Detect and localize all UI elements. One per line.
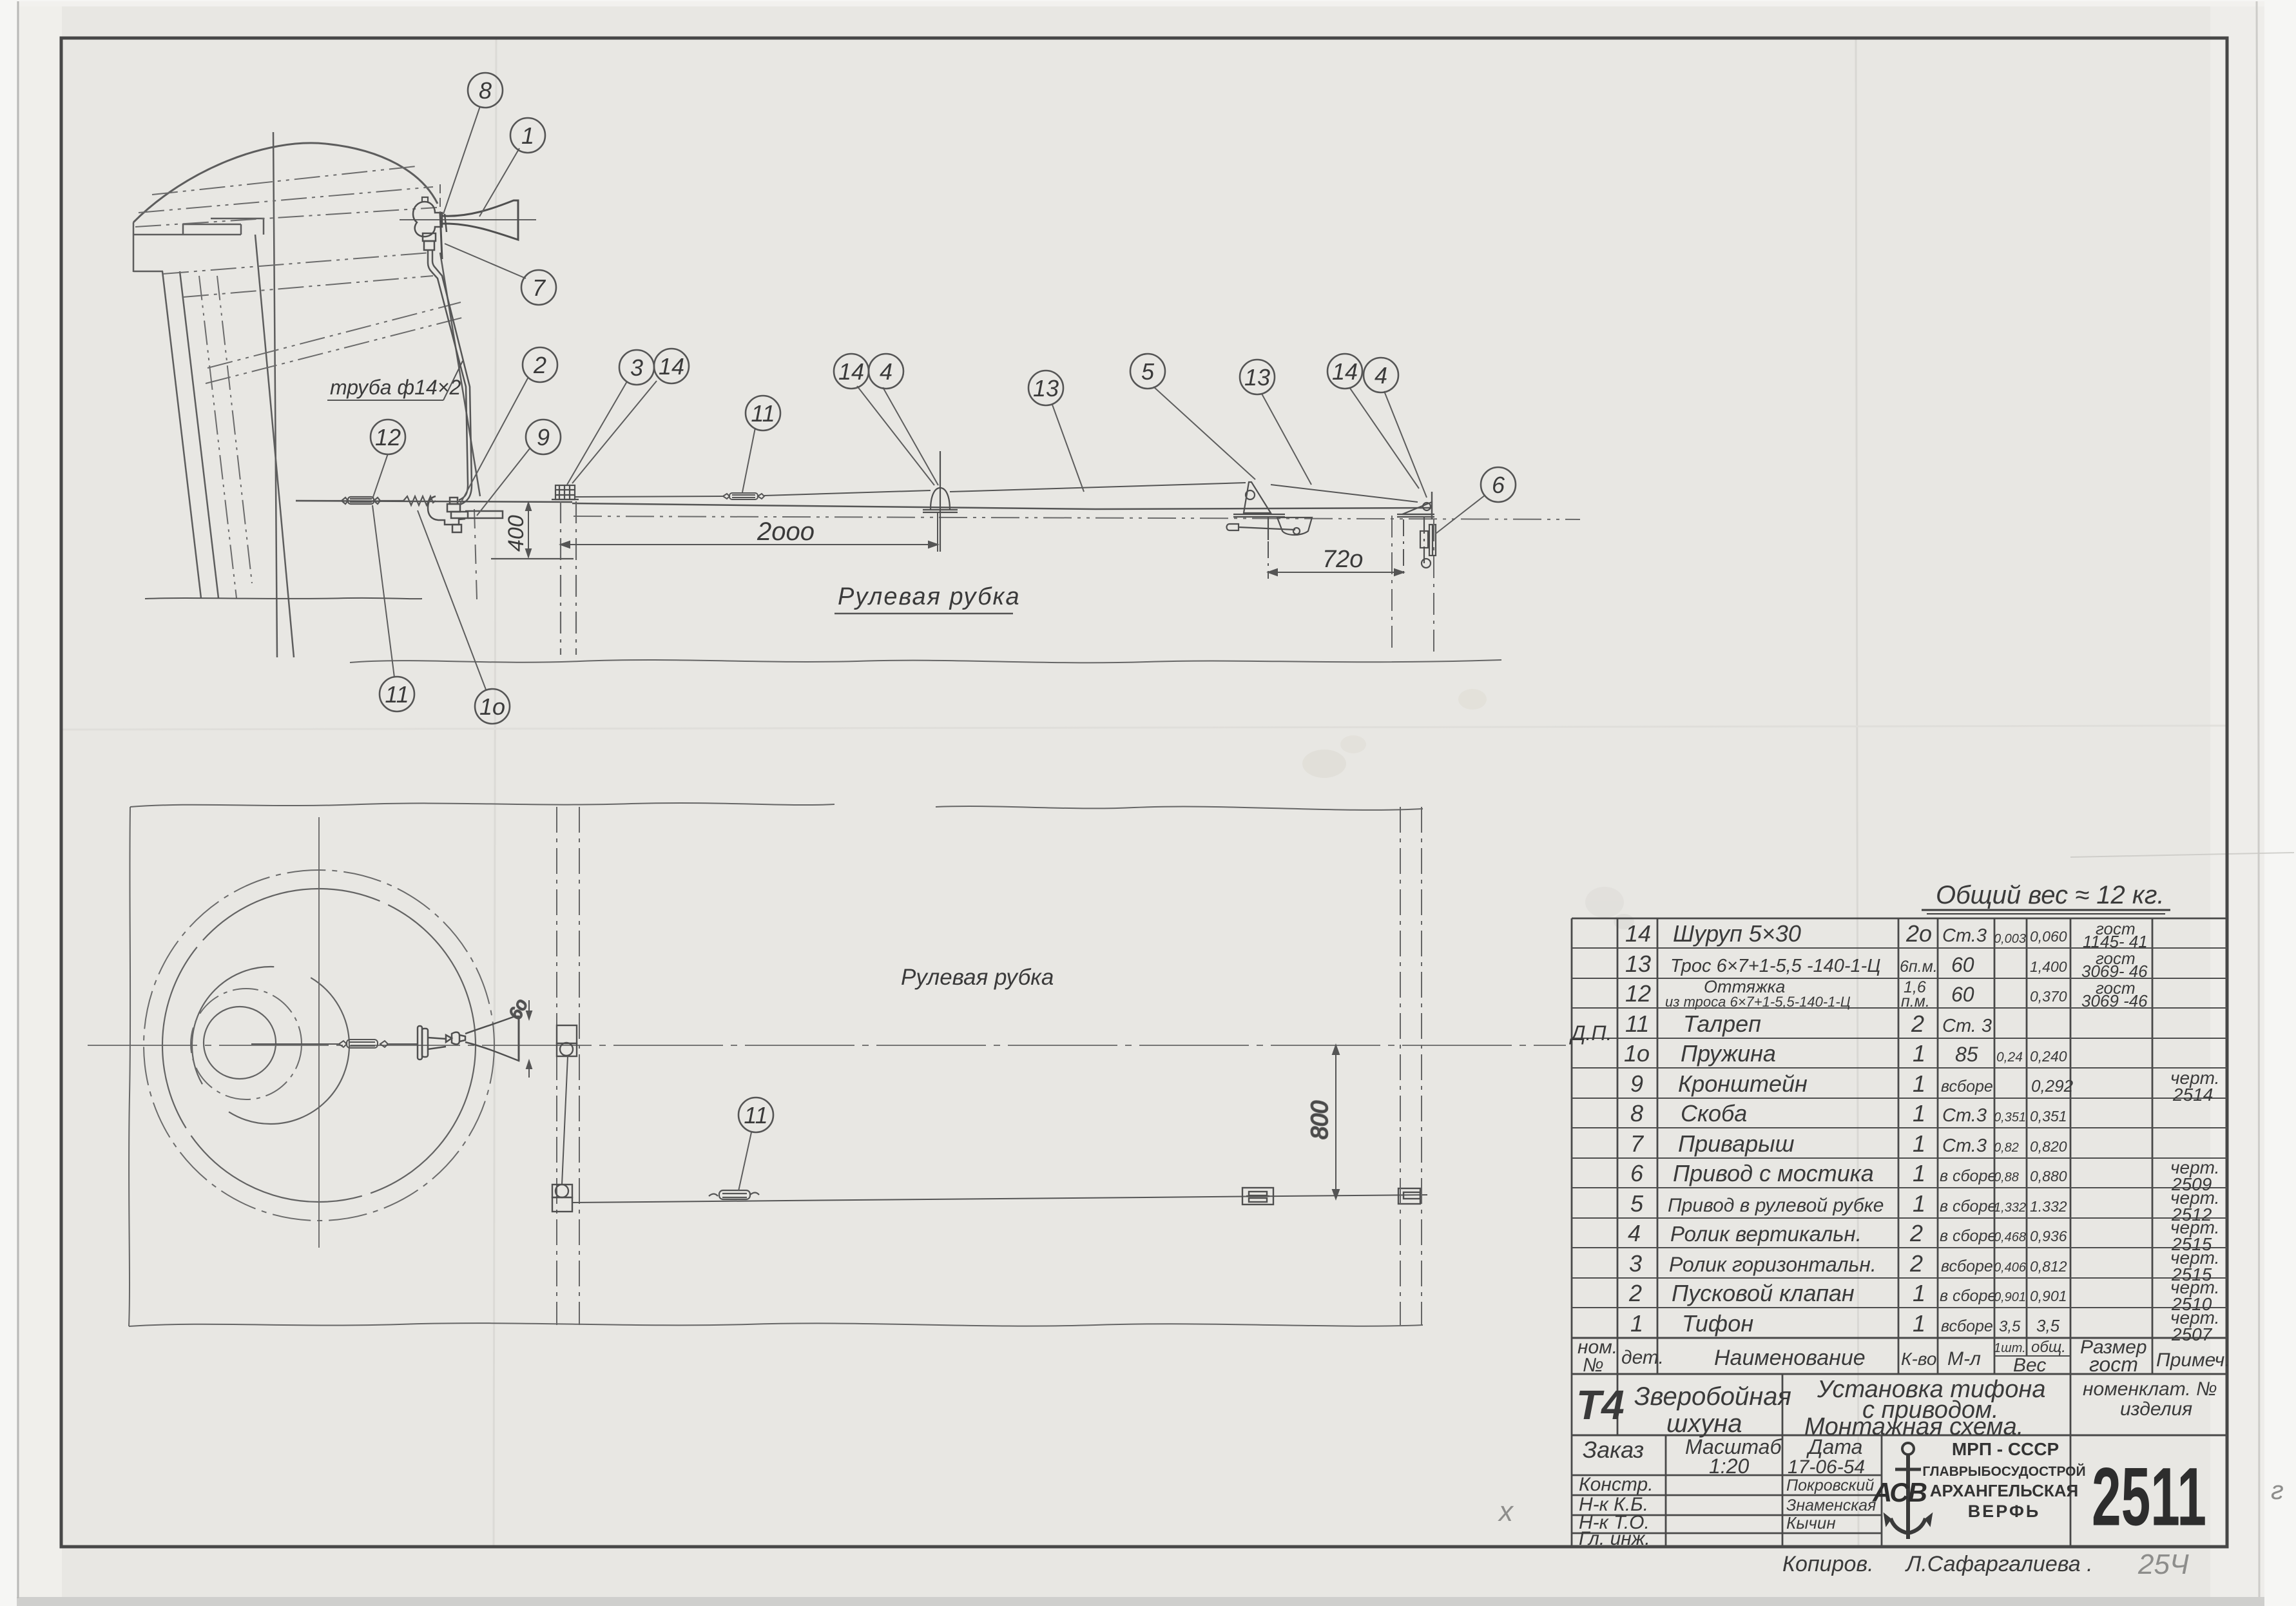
svg-text:2507: 2507 [2171,1324,2213,1344]
svg-text:1,332: 1,332 [1994,1201,2026,1215]
svg-text:3: 3 [630,354,643,381]
svg-text:0,901: 0,901 [1994,1290,2026,1304]
svg-text:14: 14 [1625,920,1651,947]
svg-text:Наименование: Наименование [1714,1346,1866,1370]
svg-text:800: 800 [1306,1101,1333,1139]
svg-text:изделия: изделия [2120,1398,2192,1420]
svg-text:Общий вес ≈ 12 кг.: Общий вес ≈ 12 кг. [1936,881,2165,909]
svg-text:13: 13 [1625,951,1651,977]
svg-text:2: 2 [533,352,546,378]
svg-text:труба ф14×2: труба ф14×2 [330,376,461,399]
svg-text:Заказ: Заказ [1583,1437,1644,1463]
svg-text:72o: 72o [1322,546,1363,573]
svg-text:Тифон: Тифон [1682,1310,1753,1337]
svg-text:13: 13 [1244,364,1270,391]
svg-text:2514: 2514 [2172,1085,2213,1105]
svg-text:9: 9 [537,424,550,450]
svg-text:11: 11 [751,400,775,427]
svg-text:Пусковой клапан: Пусковой клапан [1672,1280,1855,1306]
svg-text:Д.П.: Д.П. [1569,1021,1612,1045]
svg-text:в сборе: в сборе [1940,1227,1996,1245]
svg-text:АРХАНГЕЛЬСКАЯ: АРХАНГЕЛЬСКАЯ [1930,1481,2079,1500]
svg-text:1: 1 [1913,1040,1925,1067]
svg-text:1o: 1o [479,693,505,720]
svg-text:2: 2 [1909,1250,1923,1277]
svg-text:г: г [2271,1476,2284,1505]
svg-text:1: 1 [1913,1070,1925,1097]
svg-text:12: 12 [375,424,401,450]
svg-text:Ролик вертикальн.: Ролик вертикальн. [1670,1222,1862,1246]
svg-text:5: 5 [1141,358,1155,385]
svg-text:0,820: 0,820 [2030,1138,2067,1155]
svg-text:0,468: 0,468 [1994,1230,2026,1244]
svg-text:60: 60 [1951,983,1974,1006]
svg-text:2: 2 [1909,1220,1923,1246]
svg-text:МРП - СССР: МРП - СССР [1952,1439,2059,1459]
svg-text:4: 4 [1628,1220,1641,1246]
svg-text:11: 11 [385,681,409,708]
svg-text:Талреп: Талреп [1683,1011,1761,1037]
svg-text:в сборе: в сборе [1940,1287,1996,1305]
svg-text:Шуруп 5×30: Шуруп 5×30 [1673,920,1801,947]
svg-text:0,060: 0,060 [2030,928,2067,945]
svg-text:М-л: М-л [1947,1348,1981,1369]
svg-text:2o: 2o [1905,920,1932,947]
svg-text:0,292: 0,292 [2031,1076,2074,1096]
svg-text:Ст.3: Ст.3 [1942,925,1987,946]
svg-text:0,936: 0,936 [2030,1228,2067,1244]
svg-text:К-во: К-во [1901,1349,1936,1369]
svg-text:0,240: 0,240 [2030,1048,2067,1065]
svg-text:0,351: 0,351 [2030,1108,2067,1125]
svg-text:3,5: 3,5 [2036,1316,2060,1335]
svg-text:дет.: дет. [1621,1347,1664,1368]
svg-text:Ст. 3: Ст. 3 [1942,1016,1992,1036]
svg-text:2: 2 [1628,1280,1642,1306]
svg-text:4: 4 [1375,362,1387,389]
svg-text:0,406: 0,406 [1994,1261,2027,1275]
svg-text:шхуна: шхуна [1666,1409,1742,1438]
svg-text:0,880: 0,880 [2030,1168,2067,1185]
svg-text:13: 13 [1033,375,1059,401]
svg-text:Примеч.: Примеч. [2156,1350,2230,1371]
svg-text:1: 1 [1913,1190,1925,1217]
svg-text:400: 400 [504,515,528,552]
svg-text:всборе: всборе [1941,1078,1993,1096]
svg-text:11: 11 [744,1102,767,1128]
svg-text:1: 1 [1913,1100,1925,1127]
svg-text:п.м.: п.м. [1901,992,1930,1011]
svg-text:0,351: 0,351 [1994,1110,2026,1125]
svg-text:2511: 2511 [2092,1451,2206,1543]
svg-text:12: 12 [1625,980,1651,1007]
svg-text:14: 14 [1332,358,1358,385]
svg-text:9: 9 [1630,1070,1643,1097]
svg-text:Рулевая рубка: Рулевая рубка [901,965,1054,990]
svg-text:14: 14 [838,358,864,385]
svg-text:всборе: всборе [1941,1257,1993,1275]
svg-text:1:20: 1:20 [1709,1455,1749,1478]
svg-text:85: 85 [1955,1043,1978,1066]
svg-text:1: 1 [1913,1130,1925,1157]
svg-text:Дата: Дата [1806,1435,1862,1458]
svg-text:0,82: 0,82 [1994,1141,2019,1155]
svg-text:1: 1 [1913,1280,1925,1306]
svg-text:2: 2 [1911,1011,1924,1037]
svg-text:№: № [1583,1355,1604,1376]
svg-text:Рулевая рубка: Рулевая рубка [838,583,1021,610]
svg-text:Констр.: Констр. [1579,1474,1654,1495]
svg-text:0,88: 0,88 [1994,1170,2019,1185]
svg-text:ВЕРФЬ: ВЕРФЬ [1968,1502,2041,1521]
svg-text:1: 1 [1630,1310,1643,1337]
svg-text:6: 6 [1630,1160,1644,1186]
svg-text:Копиров.: Копиров. [1782,1552,1874,1576]
svg-text:АСВ: АСВ [1872,1477,1927,1507]
svg-text:6: 6 [1492,472,1505,498]
svg-text:Ст.3: Ст.3 [1942,1136,1987,1156]
svg-text:1,400: 1,400 [2030,958,2067,975]
svg-text:11: 11 [1625,1011,1649,1037]
svg-text:0,370: 0,370 [2030,988,2067,1005]
svg-text:60: 60 [1951,953,1974,976]
svg-text:из троса 6×7+1-5,5-140-1-Ц: из троса 6×7+1-5,5-140-1-Ц [1665,994,1851,1010]
svg-text:3069 -46: 3069 -46 [2081,991,2148,1011]
svg-text:Покровский: Покровский [1786,1476,1874,1495]
svg-text:4: 4 [880,358,892,385]
svg-text:6п.м.: 6п.м. [1900,958,1938,976]
svg-text:гост: гост [2089,1353,2138,1376]
svg-text:1.332: 1.332 [2030,1198,2067,1215]
svg-text:Скоба: Скоба [1681,1100,1747,1127]
svg-text:Зверобойная: Зверобойная [1634,1382,1791,1411]
svg-text:х: х [1498,1496,1514,1527]
svg-text:Знаменская: Знаменская [1786,1496,1876,1514]
svg-text:Пружина: Пружина [1681,1040,1776,1067]
svg-text:Кронштейн: Кронштейн [1678,1070,1808,1097]
svg-text:0,003: 0,003 [1994,932,2026,946]
svg-text:общ.: общ. [2031,1339,2066,1356]
svg-text:0,24: 0,24 [1996,1050,2023,1065]
svg-text:Ролик горизонтальн.: Ролик горизонтальн. [1669,1253,1876,1276]
svg-text:1: 1 [521,122,534,149]
svg-text:Трос 6×7+1-5,5 -140-1-Ц: Трос 6×7+1-5,5 -140-1-Ц [1670,956,1880,976]
svg-text:Кычин: Кычин [1786,1513,1836,1533]
svg-text:Приварыш: Приварыш [1678,1130,1795,1157]
svg-text:3: 3 [1629,1250,1642,1277]
svg-text:Привод в рулевой рубке: Привод в рулевой рубке [1668,1195,1884,1216]
svg-text:0,901: 0,901 [2030,1288,2067,1304]
svg-text:0,812: 0,812 [2030,1258,2067,1275]
svg-text:8: 8 [1630,1100,1643,1127]
svg-text:1: 1 [1913,1160,1925,1186]
svg-text:25Ч: 25Ч [2137,1549,2189,1580]
svg-text:Гл. инж.: Гл. инж. [1579,1528,1650,1549]
svg-text:Привод с мостика: Привод с мостика [1673,1160,1874,1186]
svg-text:1o: 1o [1624,1040,1650,1067]
svg-text:Ст.3: Ст.3 [1942,1105,1987,1126]
svg-text:17-06-54: 17-06-54 [1788,1456,1865,1478]
svg-text:5: 5 [1630,1190,1644,1217]
svg-text:в сборе: в сборе [1940,1167,1996,1185]
svg-text:Вес: Вес [2013,1355,2046,1376]
svg-text:ГЛАВРЫБОСУДОСТРОЙ: ГЛАВРЫБОСУДОСТРОЙ [1922,1464,2085,1479]
svg-text:1: 1 [1913,1310,1925,1337]
svg-text:в сборе: в сборе [1940,1197,1996,1215]
svg-text:Л.Сафаргалиева .: Л.Сафаргалиева . [1905,1552,2093,1576]
svg-text:7: 7 [1630,1130,1645,1157]
svg-text:2ooo: 2ooo [757,518,815,546]
svg-text:всборе: всборе [1941,1317,1993,1335]
svg-text:Т4: Т4 [1576,1382,1625,1428]
svg-text:1шт.: 1шт. [1994,1341,2026,1355]
svg-text:7: 7 [532,275,546,301]
svg-text:3,5: 3,5 [1999,1318,2021,1335]
svg-text:номенклат. №: номенклат. № [2083,1379,2217,1400]
svg-text:14: 14 [659,353,684,380]
svg-text:8: 8 [479,77,492,104]
